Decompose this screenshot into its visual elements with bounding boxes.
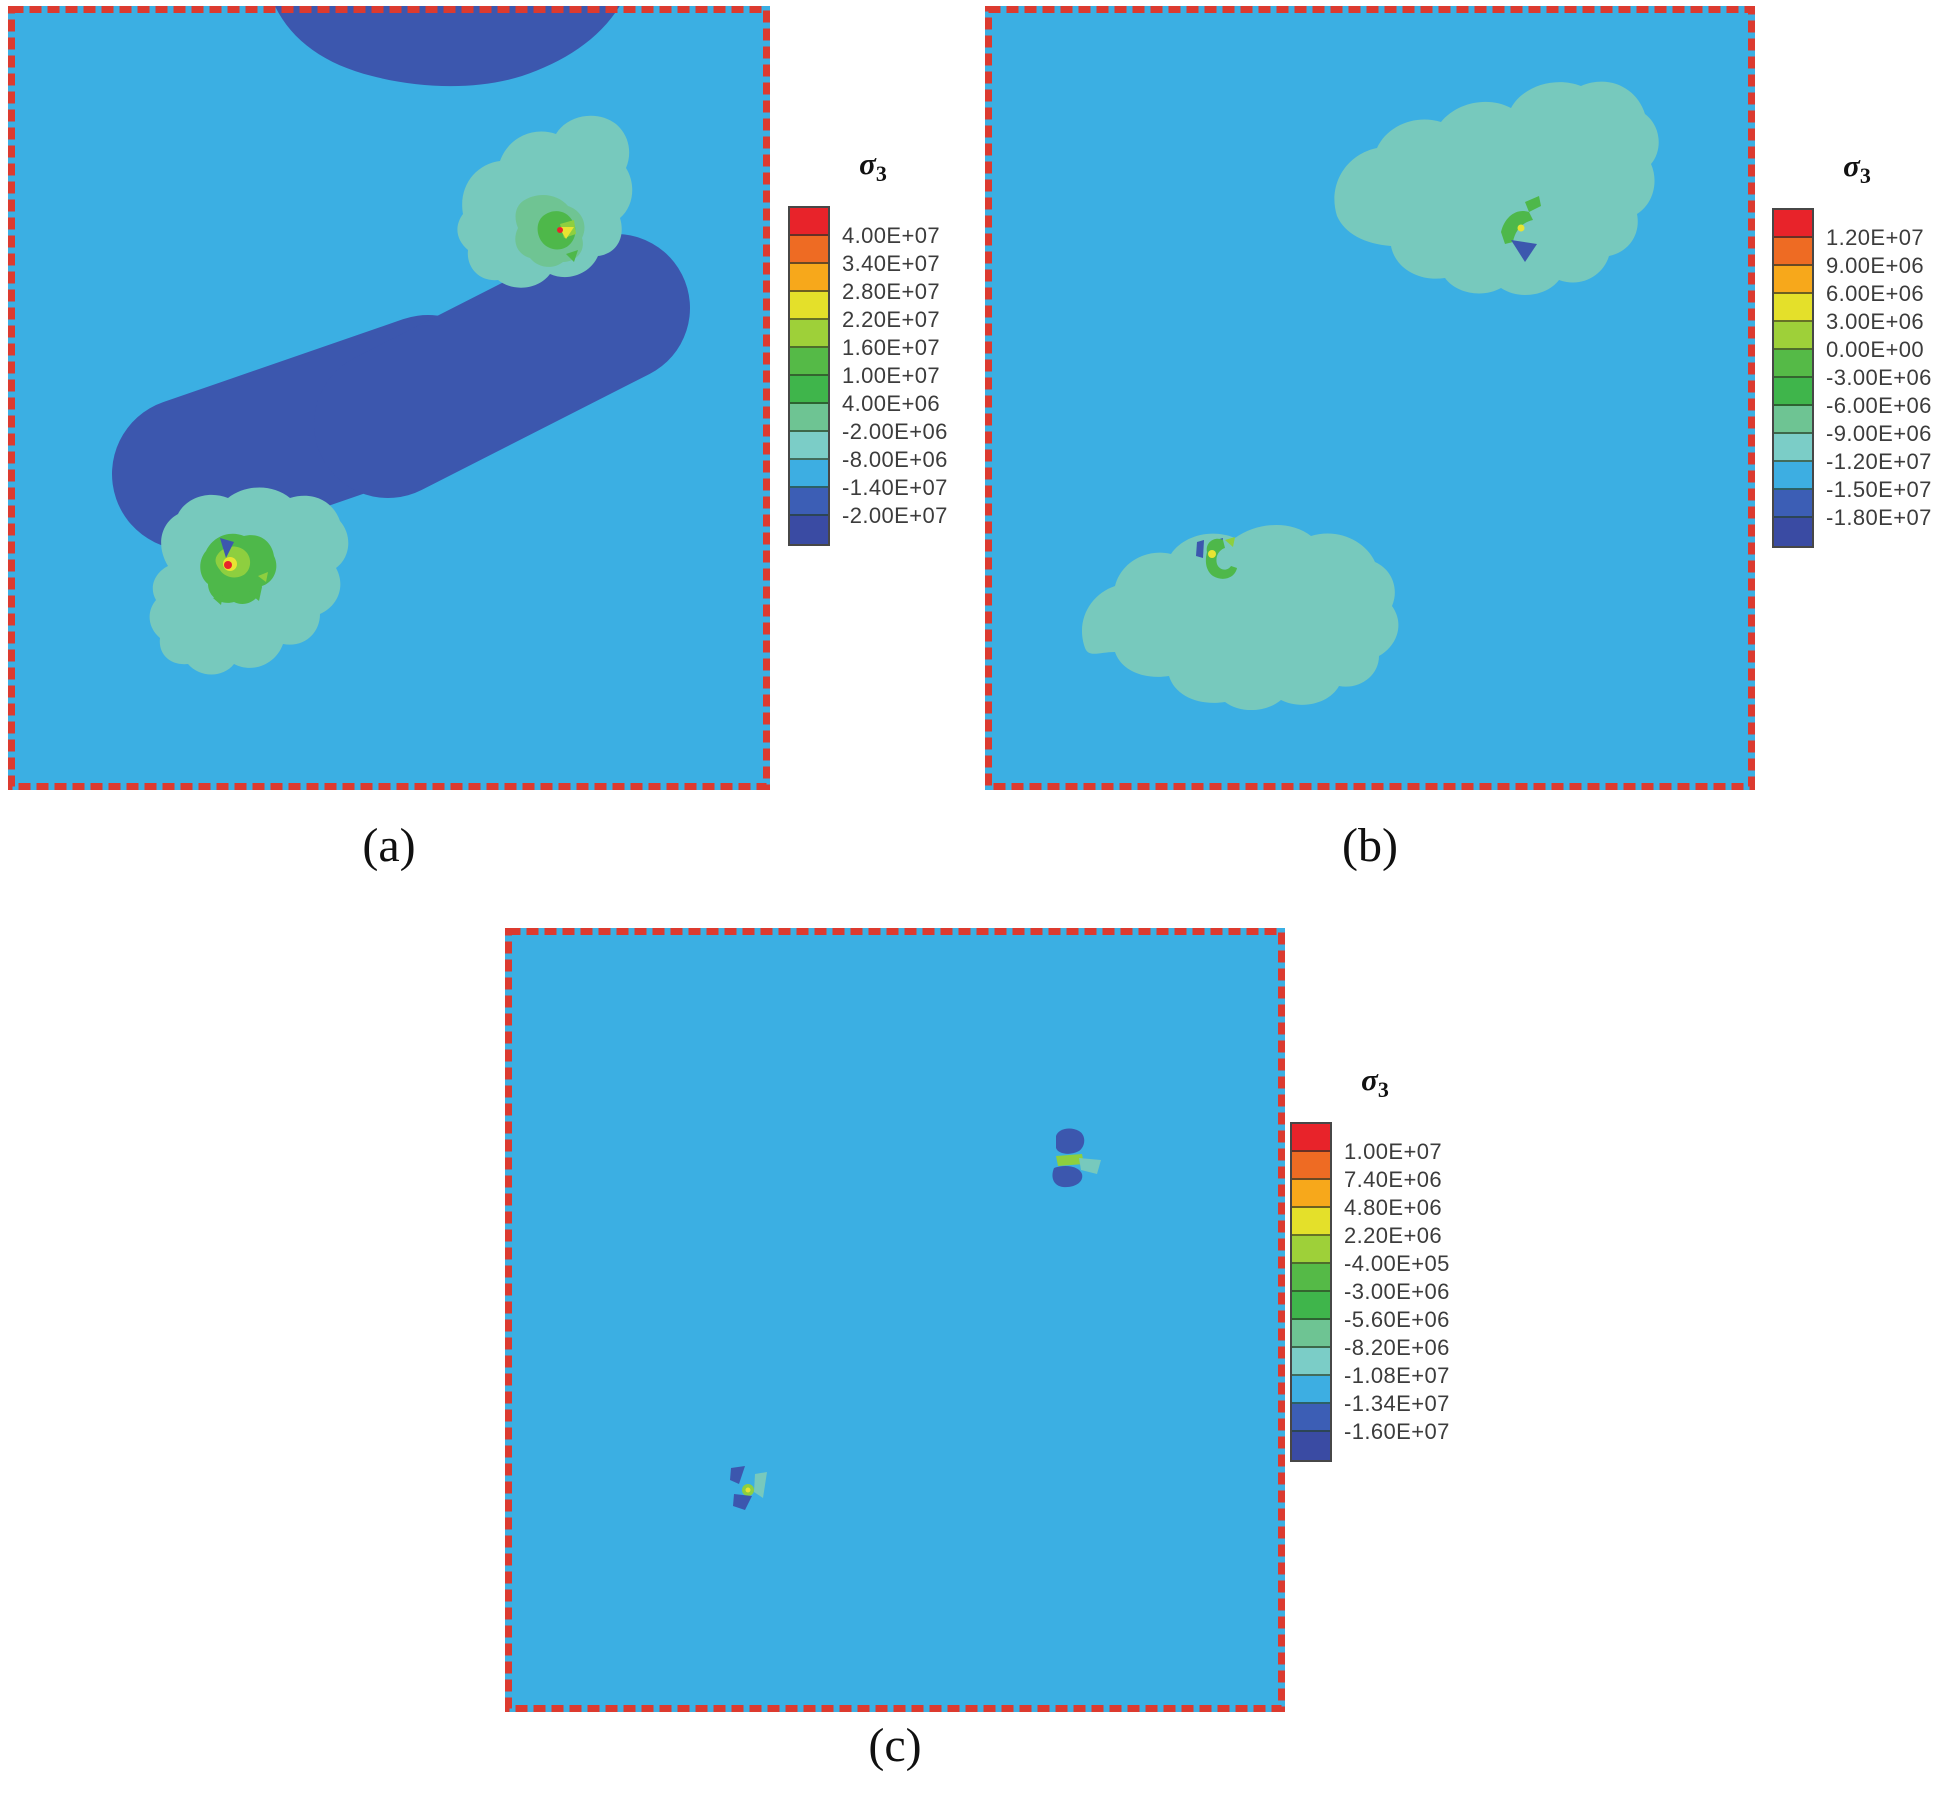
legend-color-cell [1292, 1348, 1330, 1376]
legend-level-label: -1.50E+07 [1826, 476, 1943, 504]
contour-canvas-c [505, 928, 1285, 1712]
legend-color-cell [790, 460, 828, 488]
yellow-spot-lower [746, 1488, 751, 1493]
legend-color-cell [1292, 1432, 1330, 1460]
contour-plot-c [505, 928, 1285, 1712]
contour-plot-a [8, 6, 770, 790]
crack-tip-red-spot-lower [224, 561, 232, 569]
legend-color-cell [790, 488, 828, 516]
legend-color-cell [1292, 1404, 1330, 1432]
legend-level-label: 1.00E+07 [842, 362, 960, 390]
legend-color-cell [790, 320, 828, 348]
legend-level-label: -1.34E+07 [1344, 1390, 1462, 1418]
legend-labels: 4.00E+073.40E+072.80E+072.20E+071.60E+07… [842, 222, 960, 530]
legend-colorbar [1290, 1122, 1332, 1462]
legend-level-label: 4.80E+06 [1344, 1194, 1462, 1222]
legend-level-label: -3.00E+06 [1826, 364, 1943, 392]
legend-level-label: 6.00E+06 [1826, 280, 1943, 308]
legend-color-cell [1292, 1180, 1330, 1208]
panel-caption-a: (a) [8, 818, 770, 874]
legend-level-label: -1.08E+07 [1344, 1362, 1462, 1390]
legend-color-cell [790, 516, 828, 544]
legend-level-label: 4.00E+06 [842, 390, 960, 418]
stress-field-background [505, 928, 1285, 1712]
legend-color-cell [1774, 378, 1812, 406]
legend-body: 1.00E+077.40E+064.80E+062.20E+06-4.00E+0… [1290, 1122, 1462, 1462]
legend-color-cell [790, 376, 828, 404]
legend-color-cell [790, 208, 828, 236]
legend-level-label: -1.20E+07 [1826, 448, 1943, 476]
legend-level-label: 2.20E+07 [842, 306, 960, 334]
panel-caption-b: (b) [985, 818, 1755, 874]
legend-color-cell [790, 348, 828, 376]
legend-color-cell [1292, 1208, 1330, 1236]
crack-tip-yellow-spot-upper [1518, 225, 1525, 232]
legend-level-label: -8.00E+06 [842, 446, 960, 474]
legend-level-label: 9.00E+06 [1826, 252, 1943, 280]
legend-level-label: 3.00E+06 [1826, 308, 1943, 336]
legend-color-cell [1774, 434, 1812, 462]
legend-level-label: -1.60E+07 [1344, 1418, 1462, 1446]
legend-color-cell [1292, 1236, 1330, 1264]
legend-color-cell [1774, 462, 1812, 490]
legend-level-label: 2.80E+07 [842, 278, 960, 306]
legend-level-label: -2.00E+07 [842, 502, 960, 530]
legend-level-label: -2.00E+06 [842, 418, 960, 446]
crack-tip-yellow-spot-lower [1208, 550, 1216, 558]
dark-spot-upper-top [1056, 1129, 1084, 1154]
legend-level-label: 0.00E+00 [1826, 336, 1943, 364]
legend-c: σ3 1.00E+077.40E+064.80E+062.20E+06-4.00… [1290, 1060, 1462, 1462]
legend-level-label: 4.00E+07 [842, 222, 960, 250]
legend-color-cell [1292, 1292, 1330, 1320]
legend-level-label: -8.20E+06 [1344, 1334, 1462, 1362]
legend-title: σ3 [788, 144, 958, 184]
legend-level-label: -4.00E+05 [1344, 1250, 1462, 1278]
legend-color-cell [790, 292, 828, 320]
legend-level-label: -1.40E+07 [842, 474, 960, 502]
figure-page: σ3 4.00E+073.40E+072.80E+072.20E+071.60E… [0, 0, 1943, 1796]
legend-level-label: 2.20E+06 [1344, 1222, 1462, 1250]
contour-canvas-a [8, 6, 770, 790]
legend-color-cell [1774, 406, 1812, 434]
diagonal-dark-band-right [388, 308, 616, 424]
legend-title: σ3 [1290, 1060, 1460, 1100]
legend-body: 4.00E+073.40E+072.80E+072.20E+071.60E+07… [788, 206, 960, 546]
legend-b: σ3 1.20E+079.00E+066.00E+063.00E+060.00E… [1772, 146, 1943, 548]
legend-body: 1.20E+079.00E+066.00E+063.00E+060.00E+00… [1772, 208, 1943, 548]
legend-level-label: -6.00E+06 [1826, 392, 1943, 420]
legend-level-label: 1.00E+07 [1344, 1138, 1462, 1166]
legend-color-cell [1292, 1264, 1330, 1292]
legend-a: σ3 4.00E+073.40E+072.80E+072.20E+071.60E… [788, 144, 960, 546]
legend-level-label: -1.80E+07 [1826, 504, 1943, 532]
legend-title: σ3 [1772, 146, 1942, 186]
legend-labels: 1.00E+077.40E+064.80E+062.20E+06-4.00E+0… [1344, 1138, 1462, 1446]
dark-sliver-lower-tip [1196, 540, 1204, 558]
legend-level-label: -5.60E+06 [1344, 1306, 1462, 1334]
legend-level-label: 1.20E+07 [1826, 224, 1943, 252]
legend-color-cell [1774, 350, 1812, 378]
legend-color-cell [1774, 490, 1812, 518]
legend-color-cell [1774, 518, 1812, 546]
contour-plot-b [985, 6, 1755, 790]
legend-level-label: -9.00E+06 [1826, 420, 1943, 448]
legend-color-cell [1292, 1320, 1330, 1348]
legend-labels: 1.20E+079.00E+066.00E+063.00E+060.00E+00… [1826, 224, 1943, 532]
legend-colorbar [788, 206, 830, 546]
legend-color-cell [790, 432, 828, 460]
legend-level-label: 3.40E+07 [842, 250, 960, 278]
legend-color-cell [1774, 210, 1812, 238]
legend-level-label: 7.40E+06 [1344, 1166, 1462, 1194]
legend-color-cell [1292, 1376, 1330, 1404]
legend-level-label: 1.60E+07 [842, 334, 960, 362]
legend-color-cell [1774, 294, 1812, 322]
legend-level-label: -3.00E+06 [1344, 1278, 1462, 1306]
legend-color-cell [790, 264, 828, 292]
panel-caption-c: (c) [505, 1718, 1285, 1774]
crack-tip-red-spot-upper [557, 227, 563, 233]
legend-colorbar [1772, 208, 1814, 548]
legend-color-cell [790, 236, 828, 264]
contour-canvas-b [985, 6, 1755, 790]
legend-color-cell [1292, 1124, 1330, 1152]
legend-color-cell [1774, 322, 1812, 350]
legend-color-cell [1292, 1152, 1330, 1180]
legend-color-cell [1774, 266, 1812, 294]
legend-color-cell [790, 404, 828, 432]
legend-color-cell [1774, 238, 1812, 266]
